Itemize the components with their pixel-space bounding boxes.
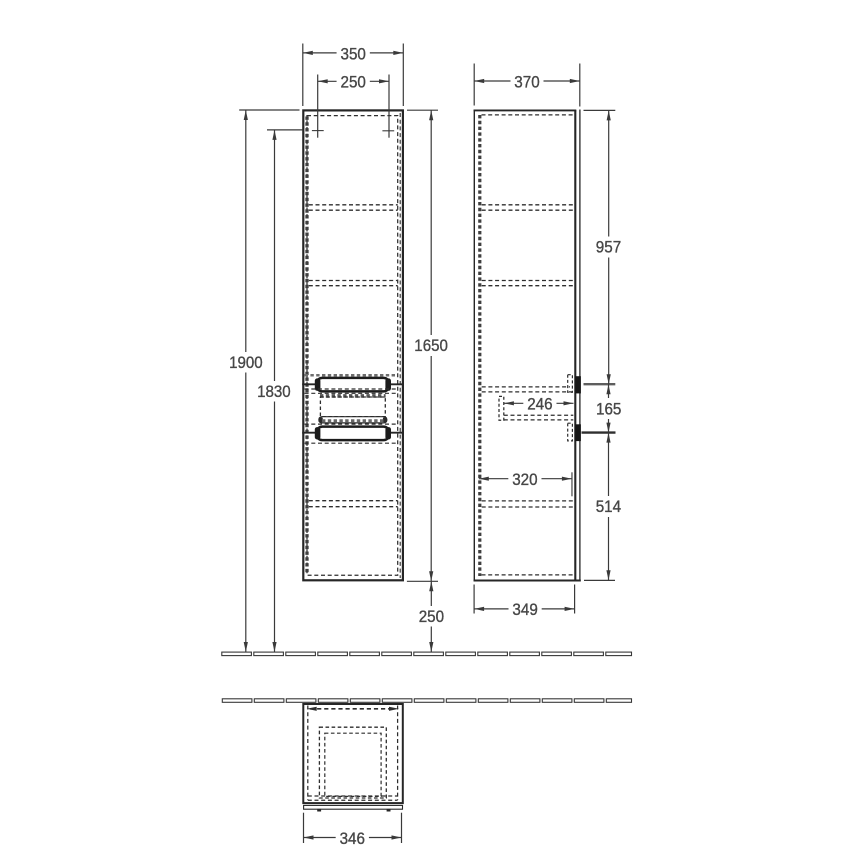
svg-text:1650: 1650 bbox=[414, 337, 448, 355]
svg-text:1900: 1900 bbox=[229, 354, 263, 372]
svg-text:957: 957 bbox=[596, 239, 621, 257]
svg-text:370: 370 bbox=[514, 73, 539, 91]
svg-text:246: 246 bbox=[527, 396, 552, 414]
svg-text:1830: 1830 bbox=[257, 383, 291, 401]
svg-text:349: 349 bbox=[512, 601, 537, 619]
svg-text:346: 346 bbox=[340, 830, 365, 848]
svg-text:320: 320 bbox=[512, 471, 537, 489]
svg-text:514: 514 bbox=[596, 498, 621, 516]
svg-text:350: 350 bbox=[341, 45, 366, 63]
svg-text:165: 165 bbox=[596, 400, 621, 418]
svg-text:250: 250 bbox=[419, 608, 444, 626]
svg-text:250: 250 bbox=[341, 74, 366, 92]
